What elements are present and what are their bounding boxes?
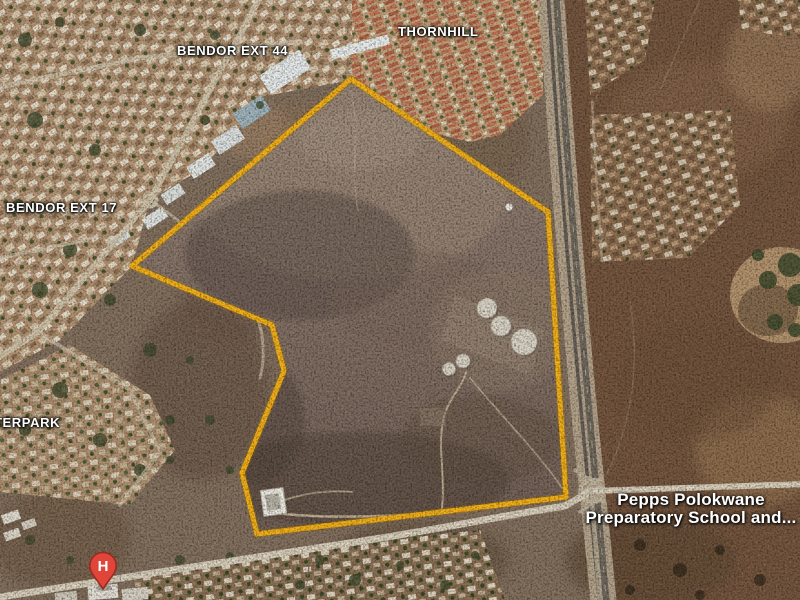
label-bendor-ext-44: BENDOR EXT 44	[177, 43, 288, 58]
poi-name-line1: Pepps Polokwane	[570, 491, 800, 509]
hospital-pin[interactable]: H	[88, 551, 118, 591]
label-pepps-school[interactable]: Pepps Polokwane Preparatory School and..…	[570, 491, 800, 527]
map-viewport[interactable]: BENDOR EXT 44 THORNHILL BENDOR EXT 17 TE…	[0, 0, 800, 600]
pin-letter: H	[98, 558, 109, 575]
label-thornhill: THORNHILL	[398, 24, 479, 39]
poi-name-line2: Preparatory School and...	[570, 509, 800, 527]
label-terpark: TERPARK	[0, 415, 60, 430]
label-bendor-ext-17: BENDOR EXT 17	[6, 200, 117, 215]
